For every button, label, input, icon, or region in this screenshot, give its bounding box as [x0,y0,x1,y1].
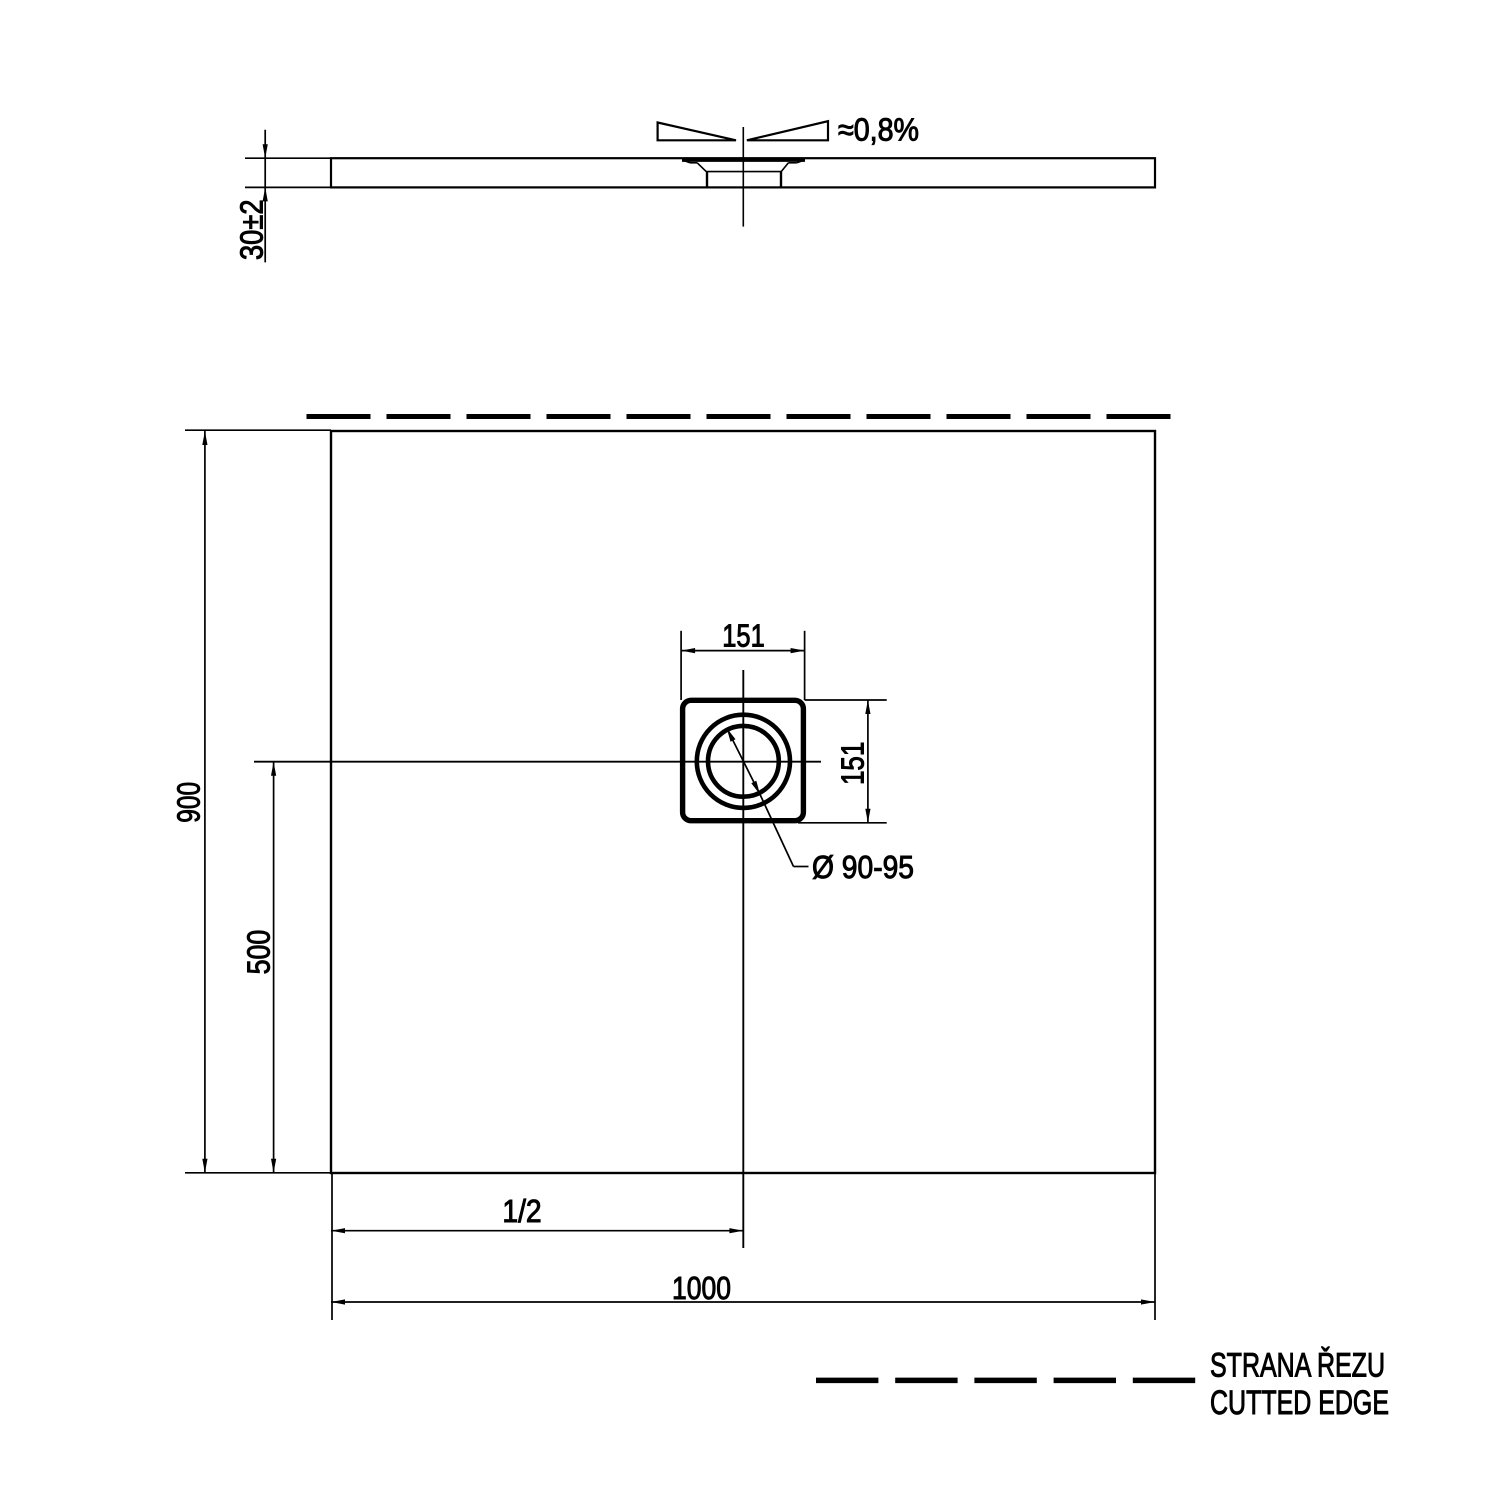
svg-text:1000: 1000 [672,1270,731,1306]
svg-text:900: 900 [171,782,207,823]
svg-text:STRANA ŘEZU: STRANA ŘEZU [1210,1347,1385,1385]
svg-text:1/2: 1/2 [502,1193,541,1229]
svg-text:30±2: 30±2 [234,200,270,261]
svg-text:500: 500 [241,930,277,975]
svg-text:Ø 90-95: Ø 90-95 [812,849,914,885]
svg-text:CUTTED EDGE: CUTTED EDGE [1210,1384,1389,1422]
svg-text:151: 151 [834,742,870,785]
svg-text:≈0,8%: ≈0,8% [838,112,919,148]
svg-text:151: 151 [722,618,765,654]
